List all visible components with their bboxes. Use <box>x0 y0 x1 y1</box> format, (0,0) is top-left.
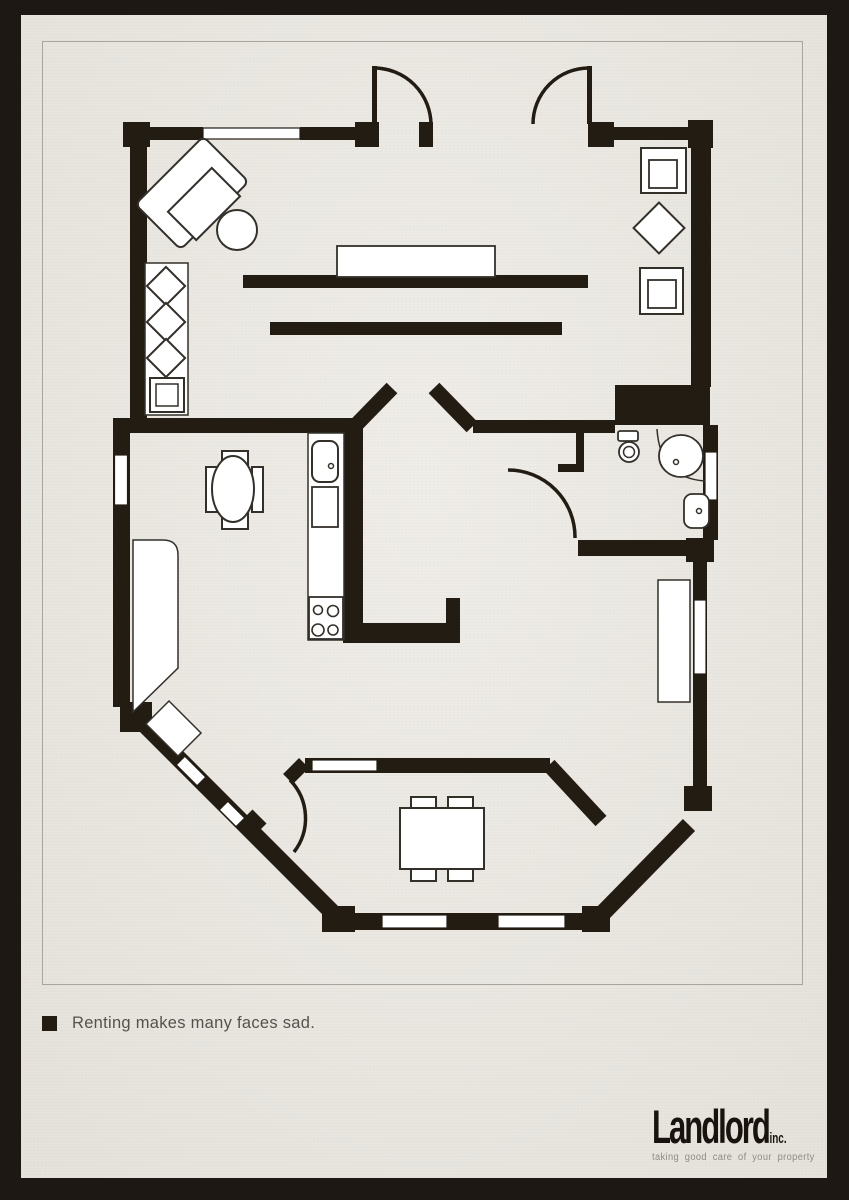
wall-jaw-right-diagonal <box>599 825 689 917</box>
burner-2 <box>328 606 339 617</box>
side-table-diamond <box>634 203 685 254</box>
wall-nose-stub <box>446 598 460 623</box>
wardrobe <box>658 580 690 702</box>
wall-mid-right <box>473 420 615 433</box>
burner-3 <box>312 624 324 636</box>
wall-nose-bottom <box>343 623 460 643</box>
burner-1 <box>314 606 323 615</box>
wall-bathroom-stub <box>558 464 584 472</box>
wall-right-upper <box>691 148 711 387</box>
wall-jamb-door1 <box>419 122 433 147</box>
shelf-box-inner <box>156 384 178 406</box>
armchair-2-seat <box>648 280 676 308</box>
wall-pillar-door2 <box>588 122 614 147</box>
brand-logo: Landlordinc. taking good care of your pr… <box>652 1103 822 1165</box>
wall-corner-right-jaw <box>684 786 712 811</box>
footnote: Renting makes many faces sad. <box>42 1013 323 1033</box>
square-bullet-icon <box>42 1016 57 1031</box>
brand-name: Landlord <box>652 1100 769 1153</box>
door2-arc <box>533 68 589 124</box>
tub-drain <box>674 460 679 465</box>
window-bottom-2 <box>498 915 565 928</box>
kitchen-appliance <box>312 487 338 527</box>
counter-left <box>133 540 178 712</box>
window-bottom-1 <box>382 915 447 928</box>
basin-drain <box>697 509 702 514</box>
wall-corner-top-left <box>123 122 150 147</box>
wall-bathroom-bottom <box>578 540 690 556</box>
door1-arc <box>374 68 431 125</box>
bathroom-door-arc <box>508 470 575 538</box>
sideboard <box>337 246 495 277</box>
coffee-table <box>217 210 257 250</box>
footnote-text: Renting makes many faces sad. <box>72 1013 315 1033</box>
window-jaw-1 <box>181 761 201 781</box>
wall-nose-diagonal-left <box>354 388 392 427</box>
wall-pillar-door1 <box>355 122 379 147</box>
wall-corner-top-right <box>688 120 713 148</box>
brand-name-row: Landlordinc. <box>652 1103 822 1147</box>
wall-nose-diagonal-right <box>434 388 472 427</box>
kitchen-table <box>212 456 254 522</box>
poster: Renting makes many faces sad. Landlordin… <box>0 0 849 1200</box>
dining-table <box>400 808 484 869</box>
entry-door-arc <box>290 780 306 852</box>
brand-tagline: taking good care of your property <box>652 1152 815 1163</box>
wall-mouth-right-tip <box>549 765 601 821</box>
burner-4 <box>328 625 338 635</box>
window-left-wall <box>115 455 128 505</box>
wall-kitchen-top <box>113 418 363 433</box>
eye-bar-lower <box>270 322 562 335</box>
wall-nose-vertical <box>343 420 363 625</box>
counter-left-diagonal <box>146 701 201 756</box>
window-top-left <box>203 128 300 139</box>
door2-leaf <box>587 66 592 124</box>
wall-bathroom-block <box>615 385 710 425</box>
door1-leaf <box>372 66 377 124</box>
wall-jaw-pillar <box>244 818 258 832</box>
wall-top-right <box>614 127 690 140</box>
window-bathroom <box>705 452 717 500</box>
bathtub <box>659 435 703 477</box>
brand-suffix: inc. <box>770 1130 787 1147</box>
wall-mouth-left-tip <box>288 763 304 779</box>
window-right-wall <box>694 600 706 674</box>
wall-top-left-a <box>150 127 203 140</box>
armchair-1-seat <box>649 160 677 188</box>
toilet-tank <box>618 431 638 441</box>
kitchen-sink <box>312 441 338 482</box>
window-mouth-wall <box>312 760 377 771</box>
wall-top-left-b <box>300 127 356 140</box>
toilet-bowl-inner <box>624 447 635 458</box>
sink-drain <box>329 464 334 469</box>
